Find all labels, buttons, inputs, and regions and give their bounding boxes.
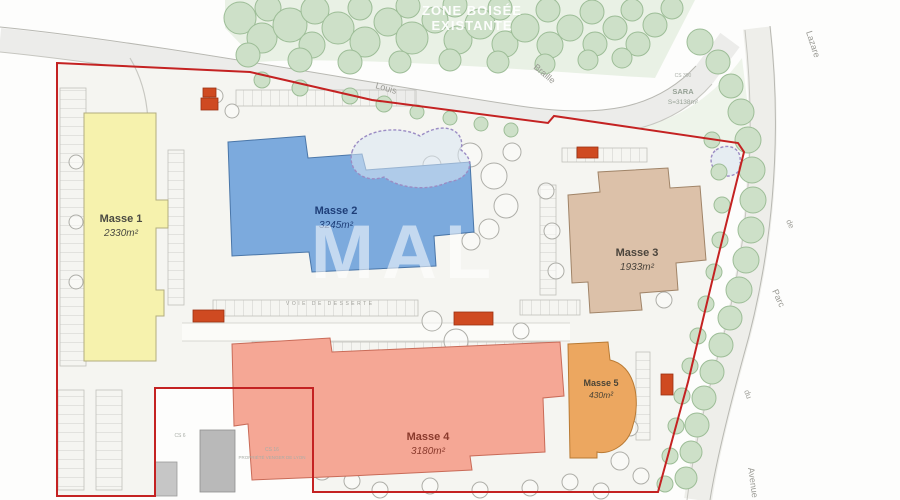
street-de: de [784,218,796,230]
entrance-marker-icon [201,98,218,110]
parking-stalls [58,390,84,490]
tree-icon [544,223,560,239]
parking-stalls [168,150,184,305]
street-parc: Parc [770,288,787,309]
sara-name: SARA [672,87,694,96]
tree-icon [656,292,672,308]
tree-icon [396,22,428,54]
tree-icon [513,323,529,339]
entrance-marker-icon [203,88,216,97]
planting-blob-large [351,128,470,188]
tree-icon [443,111,457,125]
tree-icon [692,386,716,410]
tree-icon [481,163,507,189]
tree-icon [439,49,461,71]
tree-icon [709,333,733,357]
existing-building-2 [155,462,177,496]
masse-4-area: 3180m² [411,446,446,457]
tree-icon [675,467,697,489]
existing-building-1 [200,430,235,492]
tree-icon [348,0,372,20]
tree-icon [711,164,727,180]
tree-icon [236,43,260,67]
tree-icon [522,480,538,496]
tree-icon [472,482,488,498]
tree-icon [225,104,239,118]
tree-icon [726,277,752,303]
parking-stalls [520,300,580,315]
tree-icon [621,0,643,21]
tree-icon [372,482,388,498]
tree-icon [69,155,83,169]
tree-icon [738,217,764,243]
tree-icon [706,50,730,74]
tree-icon [504,123,518,137]
street-lazare: Lazare [804,30,822,59]
parking-stalls [562,148,647,162]
tree-icon [376,96,392,112]
site-plan-page: Masse 1 2330m² Masse 2 3245m² Masse 3 19… [0,0,900,500]
tree-icon [288,48,312,72]
sara-area: S=3138m² [668,99,699,106]
tree-icon [422,311,442,331]
tree-icon [714,197,730,213]
entrance-marker-icon [577,147,598,158]
property-name: PROPRIÉTÉ VENGER DE LYON [239,454,306,460]
tree-icon [69,215,83,229]
tree-icon [557,15,583,41]
tree-icon [548,263,564,279]
tree-icon [643,13,667,37]
tree-icon [322,12,354,44]
masse-3-name: Masse 3 [616,247,659,259]
tree-icon [687,29,713,55]
property-ref2: CS 6 [174,433,185,439]
zone-boisee-label: ZONE BOISÉE EXISTANTE [422,3,522,33]
tree-icon [611,452,629,470]
tree-icon [718,306,742,330]
existing-buildings [155,430,235,496]
tree-icon [728,99,754,125]
tree-icon [580,0,604,24]
watermark-text: MAL [311,210,500,295]
masse-1-name: Masse 1 [100,213,143,225]
tree-icon [740,187,766,213]
tree-icon [603,16,627,40]
tree-icon [719,74,743,98]
masse-5-name: Masse 5 [583,378,618,388]
tree-icon [474,117,488,131]
tree-icon [578,50,598,70]
tree-icon [633,468,649,484]
masse-3-area: 1933m² [620,262,655,273]
street-avenue: Avenue [746,467,760,498]
tree-icon [538,183,554,199]
tree-icon [511,14,539,42]
tree-icon [700,360,724,384]
parking-stalls [96,390,122,490]
tree-icon [612,48,632,68]
entrance-marker-icon [193,310,224,322]
zone-boisee-line1: ZONE BOISÉE [422,3,522,18]
tree-icon [735,127,761,153]
tree-icon [69,275,83,289]
tree-icon [487,51,509,73]
zone-boisee-line2: EXISTANTE [432,18,513,33]
tree-icon [733,247,759,273]
property-ref: CS 16 [265,447,279,453]
tree-icon [338,50,362,74]
tree-icon [685,413,709,437]
masse-5-area: 430m² [589,390,614,400]
tree-icon [503,143,521,161]
tree-icon [536,0,560,22]
tree-icon [661,0,683,19]
internal-road-label: VOIE DE DESSERTE [286,301,375,307]
entrance-marker-icon [661,374,673,395]
tree-icon [680,441,702,463]
entrance-marker-icon [454,312,493,325]
masse-4-name: Masse 4 [407,431,451,443]
tree-icon [562,474,578,490]
tree-icon [389,51,411,73]
masse-1-area: 2330m² [103,228,139,239]
street-du: du [742,389,754,400]
sara-ref: CS 390 [675,73,692,79]
tree-icon [739,157,765,183]
site-plan-canvas: Masse 1 2330m² Masse 2 3245m² Masse 3 19… [0,0,900,500]
